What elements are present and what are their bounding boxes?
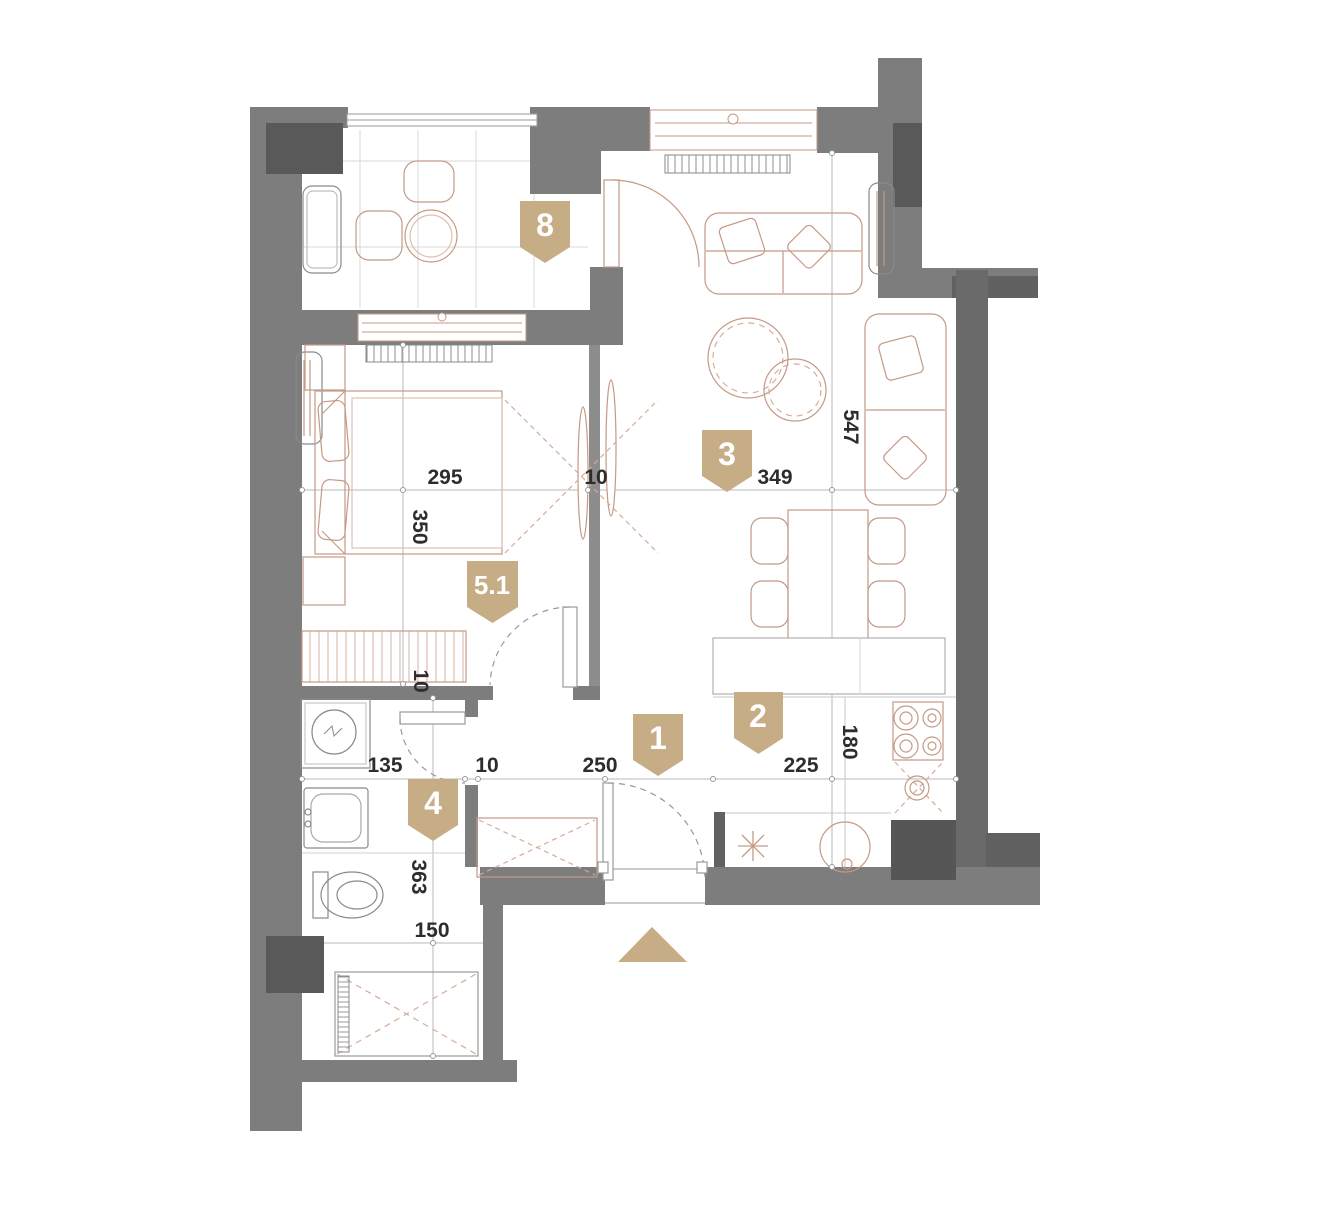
badge-label: 3	[718, 436, 736, 472]
wall-bottom-left	[480, 867, 605, 905]
badge-label: 4	[424, 785, 442, 821]
badge-label: 5.1	[474, 570, 510, 600]
bedroom-furniture	[296, 345, 658, 682]
dim-partition: 10	[584, 466, 607, 489]
sofa-main	[705, 213, 862, 294]
light-symbol	[738, 831, 768, 861]
balcony-furniture	[303, 161, 457, 273]
sofa-side	[865, 314, 946, 505]
corner-sink	[895, 762, 943, 813]
dim-living-width: 349	[757, 466, 792, 489]
toilet	[313, 872, 383, 918]
room-badge-3: 3	[702, 430, 752, 492]
balcony-chair	[404, 161, 454, 202]
dim-bath-length: 363	[407, 859, 430, 894]
floor-plan: 8 3 5.1 1 2 4 295 10 349 547 350 10	[0, 0, 1337, 1231]
balcony-bench	[303, 186, 341, 273]
shower	[335, 972, 478, 1056]
wardrobe	[302, 631, 466, 682]
badge-label: 1	[649, 720, 667, 756]
dim-wardrobe-depth: 10	[409, 669, 432, 692]
wall-shaft-kitchen	[891, 820, 956, 880]
radiator-bedroom	[366, 345, 492, 362]
dining-set	[751, 510, 905, 640]
wall-partition	[589, 345, 600, 686]
wall-right	[956, 270, 988, 870]
wall-shaft-bottom-left	[266, 936, 324, 993]
dim-shower-width: 150	[414, 919, 449, 942]
walls	[250, 58, 1040, 1131]
dim-kitchen-counter: 180	[838, 724, 861, 759]
dim-hall-wall: 10	[475, 754, 498, 777]
balcony-door	[604, 180, 699, 267]
balcony-table	[405, 210, 457, 262]
dim-living-height: 547	[839, 409, 862, 444]
bedroom-window	[358, 313, 526, 341]
wall-bath-bottom	[295, 1060, 517, 1082]
kitchen-island	[713, 638, 945, 694]
dim-bedroom-height: 350	[408, 509, 431, 544]
stove	[893, 702, 943, 760]
bathroom-fixtures	[301, 699, 478, 1056]
room-badge-2: 2	[734, 692, 783, 754]
doors	[400, 180, 707, 880]
radiator-living	[665, 155, 790, 173]
room-badge-1: 1	[633, 714, 683, 776]
bedroom-door	[490, 607, 577, 687]
dim-kitchen-width: 225	[783, 754, 818, 777]
balcony-chair	[356, 211, 402, 260]
shower-drain	[338, 976, 349, 1052]
wall-bottom-right	[705, 867, 1040, 905]
nightstand	[303, 557, 345, 605]
dim-hall-width: 250	[582, 754, 617, 777]
washing-machine	[301, 699, 370, 768]
dim-bedroom-width: 295	[427, 466, 462, 489]
dim-bath-width: 135	[367, 754, 402, 777]
room-badge-5-1: 5.1	[467, 561, 518, 623]
wall-shaft-top-left	[266, 123, 343, 174]
badge-label: 8	[536, 207, 554, 243]
badge-label: 2	[749, 698, 767, 734]
room-badge-8: 8	[520, 201, 570, 263]
room-badge-4: 4	[408, 779, 458, 841]
entry-door	[598, 783, 707, 880]
entrance-arrow-icon	[618, 927, 687, 962]
bathroom-sink	[304, 788, 368, 848]
living-window	[650, 110, 817, 150]
coffee-tables	[708, 318, 826, 421]
balcony-glazing	[347, 114, 537, 126]
